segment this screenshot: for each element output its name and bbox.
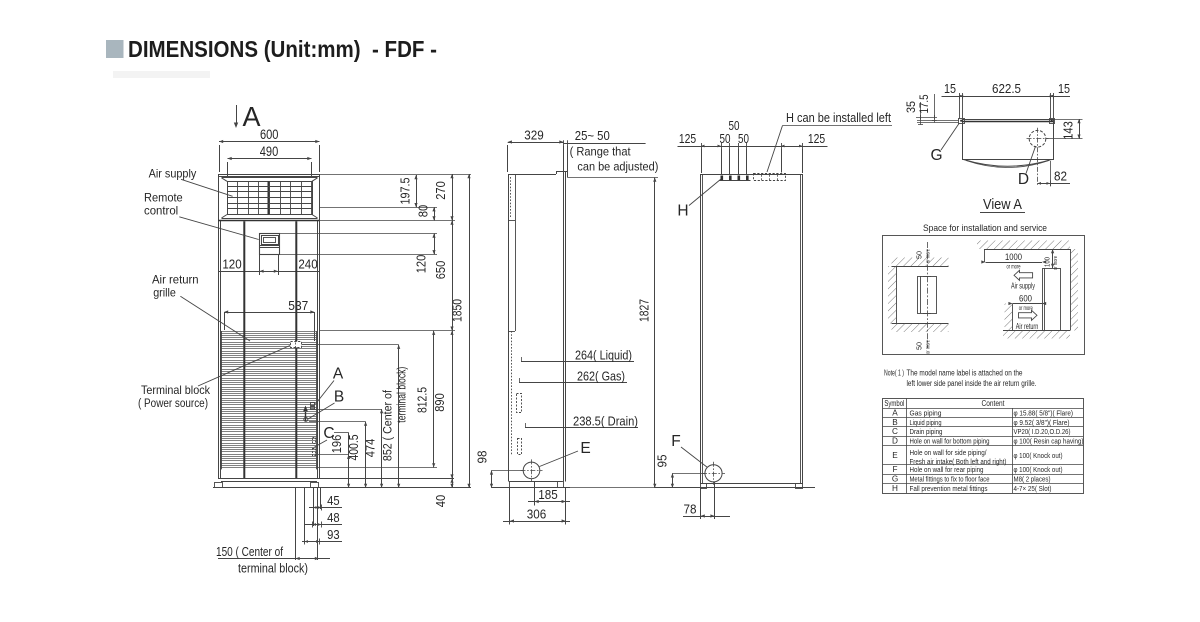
svg-text:306: 306 — [527, 507, 547, 522]
svg-text:650: 650 — [433, 261, 448, 280]
svg-text:264( Liquid): 264( Liquid) — [575, 349, 632, 363]
svg-text:50: 50 — [729, 118, 740, 133]
svg-text:25~ 50: 25~ 50 — [575, 128, 610, 143]
svg-text:262( Gas): 262( Gas) — [577, 370, 625, 384]
svg-text:Fresh air intake( Both left an: Fresh air intake( Both left and right) — [910, 457, 1007, 466]
svg-text:50: 50 — [720, 131, 731, 146]
svg-text:1827: 1827 — [636, 299, 651, 322]
svg-text:45: 45 — [327, 493, 340, 508]
svg-text:Hole on wall for rear piping: Hole on wall for rear piping — [910, 465, 984, 474]
svg-text:E: E — [580, 440, 590, 457]
svg-text:Content: Content — [982, 399, 1006, 408]
svg-text:A: A — [243, 101, 261, 132]
svg-text:terminal block): terminal block) — [238, 562, 308, 576]
svg-text:329: 329 — [524, 128, 544, 143]
svg-text:600: 600 — [1019, 294, 1032, 304]
svg-text:Remote: Remote — [144, 191, 183, 205]
svg-text:or more: or more — [1053, 256, 1059, 270]
svg-text:Drain piping: Drain piping — [910, 427, 943, 436]
svg-text:50: 50 — [917, 251, 924, 259]
svg-text:φ 100( Resin cap having): φ 100( Resin cap having) — [1014, 437, 1084, 446]
svg-text:490: 490 — [260, 144, 279, 159]
svg-text:VP20( I.D.20,O.D.26): VP20( I.D.20,O.D.26) — [1014, 427, 1071, 436]
svg-text:or more: or more — [926, 340, 932, 354]
svg-text:40: 40 — [433, 495, 448, 508]
svg-text:F: F — [671, 433, 680, 450]
svg-text:or more: or more — [1019, 305, 1033, 312]
svg-text:H can be installed left: H can be installed left — [786, 111, 891, 125]
svg-text:890: 890 — [432, 393, 447, 412]
svg-text:φ 100( Knock out): φ 100( Knock out) — [1014, 465, 1063, 474]
svg-text:125: 125 — [679, 131, 696, 146]
svg-text:82: 82 — [1054, 168, 1067, 183]
svg-text:Metal fittings to fix to floor: Metal fittings to fix to floor face — [910, 475, 990, 484]
svg-text:143: 143 — [1061, 121, 1076, 140]
svg-text:grille: grille — [153, 286, 176, 300]
svg-text:Air return: Air return — [1016, 321, 1039, 331]
svg-text:can be adjusted): can be adjusted) — [577, 160, 658, 174]
svg-text:B: B — [334, 389, 344, 406]
svg-text:M8( 2 places): M8( 2 places) — [1014, 475, 1051, 484]
svg-text:4-7× 25( Slot): 4-7× 25( Slot) — [1014, 484, 1052, 493]
svg-text:Hole on wall for side piping/: Hole on wall for side piping/ — [910, 448, 988, 457]
svg-text:50: 50 — [738, 131, 749, 146]
svg-text:Note( 1 ): Note( 1 ) — [884, 369, 904, 378]
svg-text:1000: 1000 — [1005, 252, 1022, 262]
svg-text:93: 93 — [327, 527, 340, 542]
svg-text:852 ( Center of: 852 ( Center of — [380, 390, 394, 462]
svg-text:Hole on wall for bottom piping: Hole on wall for bottom piping — [910, 437, 990, 446]
svg-text:238.5( Drain): 238.5( Drain) — [573, 415, 638, 429]
svg-text:Liquid piping: Liquid piping — [910, 418, 942, 427]
svg-text:G: G — [930, 147, 942, 164]
svg-text:The model name label is attach: The model name label is attached on the — [907, 369, 1023, 378]
svg-text:125: 125 — [808, 131, 825, 146]
svg-text:78: 78 — [684, 502, 697, 517]
svg-text:15: 15 — [1058, 81, 1070, 96]
svg-text:474: 474 — [363, 439, 378, 458]
svg-text:Air supply: Air supply — [149, 167, 197, 181]
svg-text:φ 15.88( 5/8")( Flare): φ 15.88( 5/8")( Flare) — [1014, 408, 1074, 417]
svg-text:537: 537 — [288, 298, 308, 313]
svg-text:17.5: 17.5 — [917, 94, 931, 113]
svg-text:98: 98 — [475, 451, 490, 464]
svg-text:left lower side panel inside t: left lower side panel inside the air ret… — [907, 379, 1037, 388]
svg-text:270: 270 — [433, 181, 448, 200]
svg-text:D: D — [1018, 171, 1029, 188]
svg-text:A: A — [892, 408, 898, 417]
svg-text:Air supply: Air supply — [1011, 281, 1035, 291]
svg-text:or more: or more — [1007, 264, 1021, 271]
svg-text:150 ( Center of: 150 ( Center of — [216, 545, 283, 559]
svg-text:B: B — [892, 418, 898, 427]
svg-text:Fall prevention metal fittings: Fall prevention metal fittings — [910, 484, 988, 493]
svg-text:H: H — [677, 203, 688, 220]
svg-text:Air return: Air return — [152, 273, 199, 287]
svg-text:95: 95 — [655, 455, 670, 468]
svg-text:240: 240 — [298, 257, 317, 272]
svg-text:View A: View A — [983, 197, 1022, 213]
svg-text:197.5: 197.5 — [398, 178, 413, 205]
svg-text:48: 48 — [327, 510, 340, 525]
svg-text:120: 120 — [222, 257, 241, 272]
svg-text:622.5: 622.5 — [992, 81, 1021, 96]
svg-text:DIMENSIONS (Unit:mm) - FDF -: DIMENSIONS (Unit:mm) - FDF - — [128, 36, 437, 62]
svg-text:Gas piping: Gas piping — [910, 408, 942, 417]
svg-text:( Power source): ( Power source) — [138, 398, 208, 410]
svg-text:50: 50 — [917, 342, 924, 350]
svg-text:control: control — [144, 204, 178, 218]
svg-text:G: G — [892, 475, 898, 484]
svg-text:D: D — [892, 437, 898, 446]
svg-text:A: A — [333, 366, 344, 383]
svg-text:185: 185 — [538, 487, 558, 502]
svg-text:Symbol: Symbol — [884, 399, 904, 408]
svg-text:H: H — [892, 484, 898, 493]
svg-text:80: 80 — [416, 205, 431, 218]
svg-text:196: 196 — [329, 435, 344, 454]
svg-text:120: 120 — [414, 255, 429, 274]
svg-text:φ 9.52( 3/8")( Flare): φ 9.52( 3/8")( Flare) — [1014, 418, 1070, 427]
svg-text:E: E — [892, 451, 898, 460]
svg-text:15: 15 — [944, 81, 956, 96]
svg-text:or more: or more — [926, 249, 932, 263]
svg-text:terminal block): terminal block) — [395, 367, 409, 423]
svg-text:( Range that: ( Range that — [570, 145, 632, 159]
svg-text:φ 100( Knock out): φ 100( Knock out) — [1014, 451, 1063, 460]
svg-text:1850: 1850 — [450, 299, 465, 322]
svg-text:C: C — [892, 427, 898, 436]
svg-text:812.5: 812.5 — [415, 387, 430, 413]
svg-text:Space for installation and ser: Space for installation and service — [923, 223, 1047, 234]
svg-text:600: 600 — [260, 127, 279, 142]
svg-text:F: F — [892, 465, 897, 474]
